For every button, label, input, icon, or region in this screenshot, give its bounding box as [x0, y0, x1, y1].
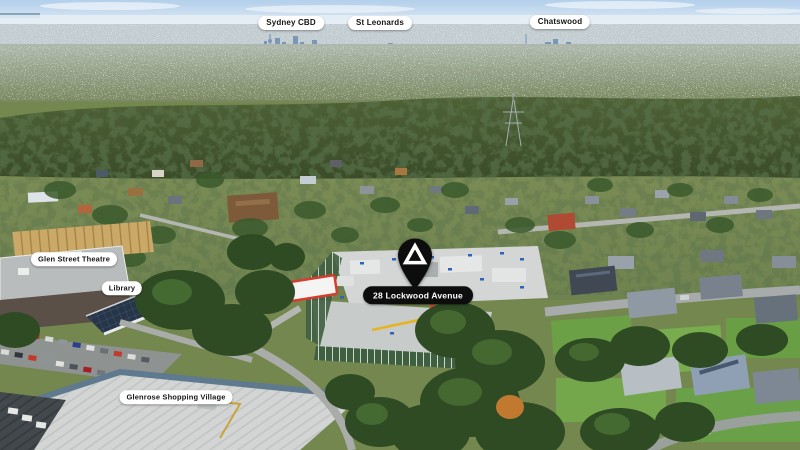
callout-sydney-cbd: Sydney CBD — [258, 16, 324, 30]
aerial-photo-scene — [0, 0, 800, 450]
callout-library: Library — [102, 281, 142, 295]
property-pin-icon — [398, 238, 432, 290]
callout-glen-street-theatre: Glen Street Theatre — [31, 252, 117, 266]
callout-chatswood: Chatswood — [530, 15, 590, 29]
property-address-label: 28 Lockwood Avenue — [363, 286, 473, 304]
aerial-photo: Sydney CBD St Leonards Chatswood Glen St… — [0, 0, 800, 450]
callout-glenrose-shopping-village: Glenrose Shopping Village — [119, 390, 232, 404]
map-pin-icon — [398, 238, 432, 290]
callout-st-leonards: St Leonards — [348, 16, 412, 30]
